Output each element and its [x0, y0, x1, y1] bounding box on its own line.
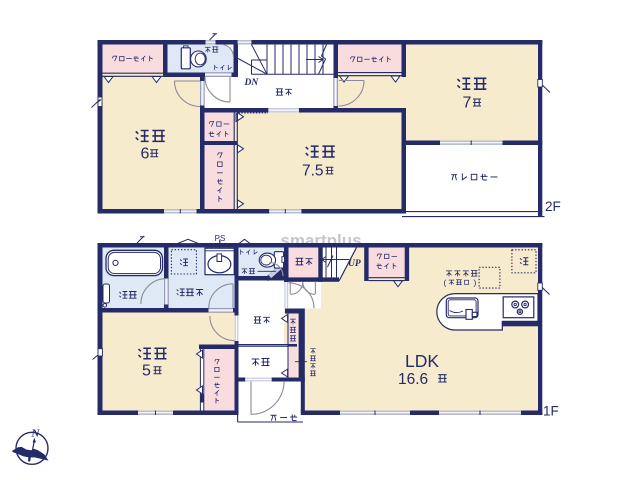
svg-text:1F: 1F — [543, 404, 559, 419]
svg-text:UP: UP — [348, 259, 361, 269]
svg-text:16.6: 16.6 — [398, 371, 428, 388]
svg-text:PS: PS — [215, 234, 226, 243]
svg-text:): ) — [474, 278, 477, 288]
svg-text:2F: 2F — [545, 199, 561, 214]
svg-text:N: N — [31, 428, 41, 440]
svg-text:7: 7 — [463, 95, 472, 112]
svg-text:6: 6 — [141, 146, 150, 163]
svg-text:DN: DN — [244, 78, 260, 88]
svg-text:LDK: LDK — [405, 351, 439, 371]
svg-text:5: 5 — [142, 363, 151, 380]
svg-text:(: ( — [444, 278, 447, 288]
svg-text:7.5: 7.5 — [302, 163, 324, 180]
